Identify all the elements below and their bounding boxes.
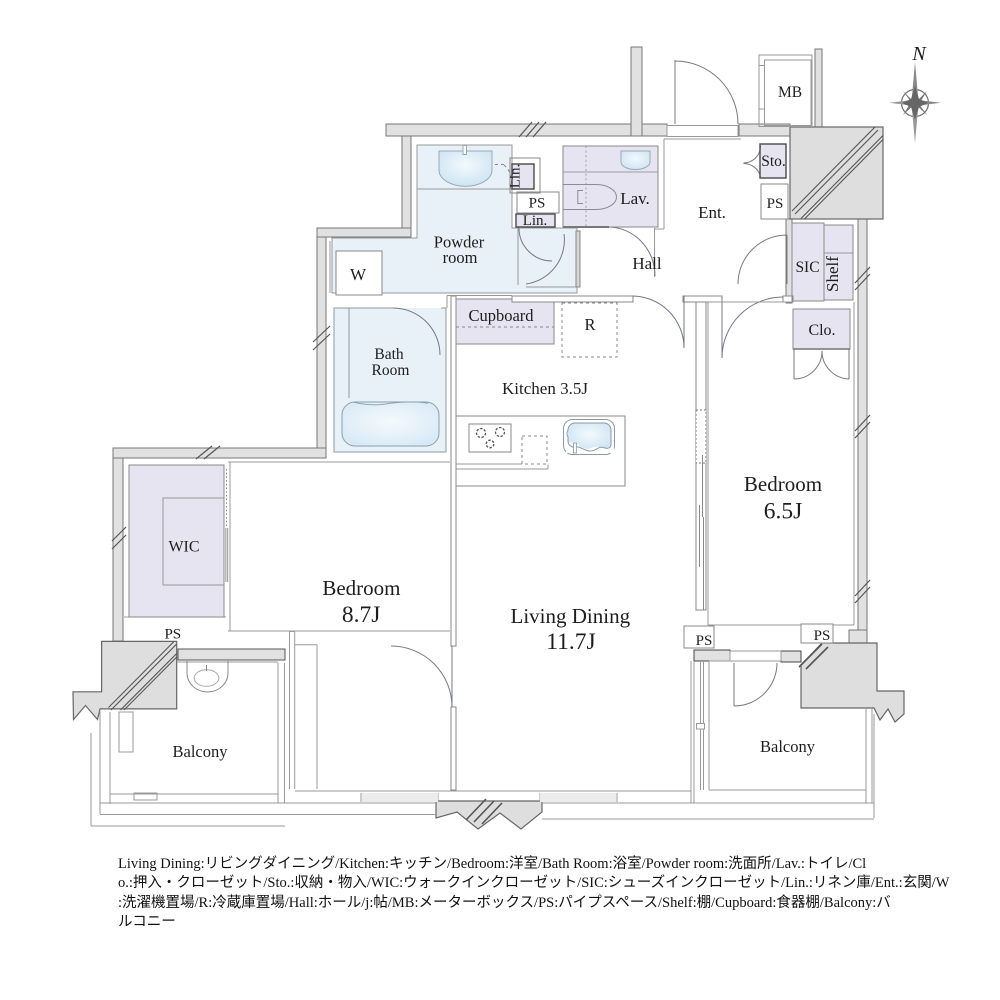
svg-text:PS: PS bbox=[164, 627, 181, 643]
svg-text:Hall: Hall bbox=[632, 254, 662, 273]
svg-text:Lin.: Lin. bbox=[523, 213, 548, 229]
svg-text:Sto.: Sto. bbox=[761, 153, 786, 170]
svg-text:Kitchen 3.5J: Kitchen 3.5J bbox=[502, 379, 588, 398]
svg-text:MB: MB bbox=[778, 84, 802, 101]
svg-text:Shelf: Shelf bbox=[823, 256, 842, 292]
svg-text:WIC: WIC bbox=[168, 539, 199, 556]
svg-text:Balcony: Balcony bbox=[760, 737, 816, 756]
svg-text:Bedroom: Bedroom bbox=[744, 472, 822, 496]
svg-text:11.7J: 11.7J bbox=[546, 629, 595, 655]
svg-text:PS: PS bbox=[814, 628, 831, 644]
svg-text:N: N bbox=[911, 43, 927, 65]
svg-text:Bath: Bath bbox=[374, 346, 404, 363]
svg-text:8.7J: 8.7J bbox=[342, 602, 381, 628]
svg-text:Lav.: Lav. bbox=[620, 189, 650, 208]
svg-text:Room: Room bbox=[372, 362, 410, 379]
svg-text:Living Dining: Living Dining bbox=[511, 604, 631, 628]
svg-text:Clo.: Clo. bbox=[808, 322, 835, 339]
svg-text:Ent.: Ent. bbox=[698, 203, 726, 222]
svg-text:R: R bbox=[584, 315, 595, 334]
svg-text:Lin.: Lin. bbox=[508, 164, 524, 189]
svg-text:PS: PS bbox=[529, 196, 546, 212]
svg-text:Balcony: Balcony bbox=[173, 742, 229, 761]
svg-text:6.5J: 6.5J bbox=[764, 499, 803, 525]
svg-text:SIC: SIC bbox=[795, 259, 819, 276]
svg-text:W: W bbox=[350, 265, 367, 284]
svg-text:room: room bbox=[443, 248, 478, 267]
svg-text:Bedroom: Bedroom bbox=[322, 576, 400, 600]
svg-text:PS: PS bbox=[696, 633, 713, 649]
svg-text:Cupboard: Cupboard bbox=[468, 306, 534, 325]
svg-text:PS: PS bbox=[767, 196, 784, 212]
